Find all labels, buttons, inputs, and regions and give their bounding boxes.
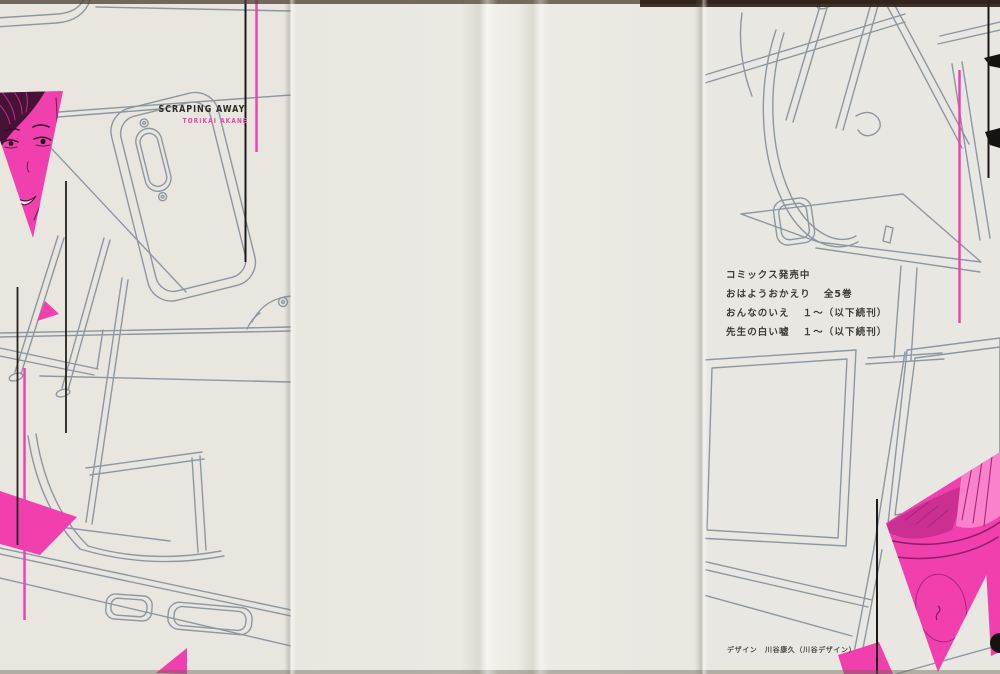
ad-volumes: 全5巻	[824, 290, 853, 300]
book-jacket-scan: SCRAPING AWAY. TORIKAI AKANE コミックス発売中 おは…	[0, 0, 1000, 674]
ad-title: おんなのいえ	[726, 309, 790, 319]
cover-author-english: TORIKAI AKANE	[141, 117, 248, 125]
cover-title-english: SCRAPING AWAY.	[144, 104, 248, 115]
pink-triangle-face	[0, 90, 63, 238]
pink-triangle-bottom-left	[0, 491, 77, 555]
pink-triangle-figure	[884, 450, 1000, 672]
comics-ad-item: おはようおかえり 全5巻	[726, 290, 887, 300]
ad-volumes: １～（以下続刊）	[803, 328, 888, 338]
design-credit: デザイン 川谷康久（川谷デザイン）	[727, 645, 856, 655]
comics-ad-item: おんなのいえ １～（以下続刊）	[726, 309, 887, 319]
comics-ad-heading: コミックス発売中	[726, 271, 887, 281]
ad-title: 先生の白い嘘	[726, 328, 790, 338]
comics-ad-list: コミックス発売中 おはようおかえり 全5巻 おんなのいえ １～（以下続刊） 先生…	[726, 271, 887, 347]
ad-volumes: １～（以下続刊）	[803, 309, 888, 319]
flap-title-block: SCRAPING AWAY. TORIKAI AKANE	[118, 104, 248, 125]
comics-ad-item: 先生の白い嘘 １～（以下続刊）	[726, 328, 887, 338]
ad-title: おはようおかえり	[726, 290, 811, 300]
